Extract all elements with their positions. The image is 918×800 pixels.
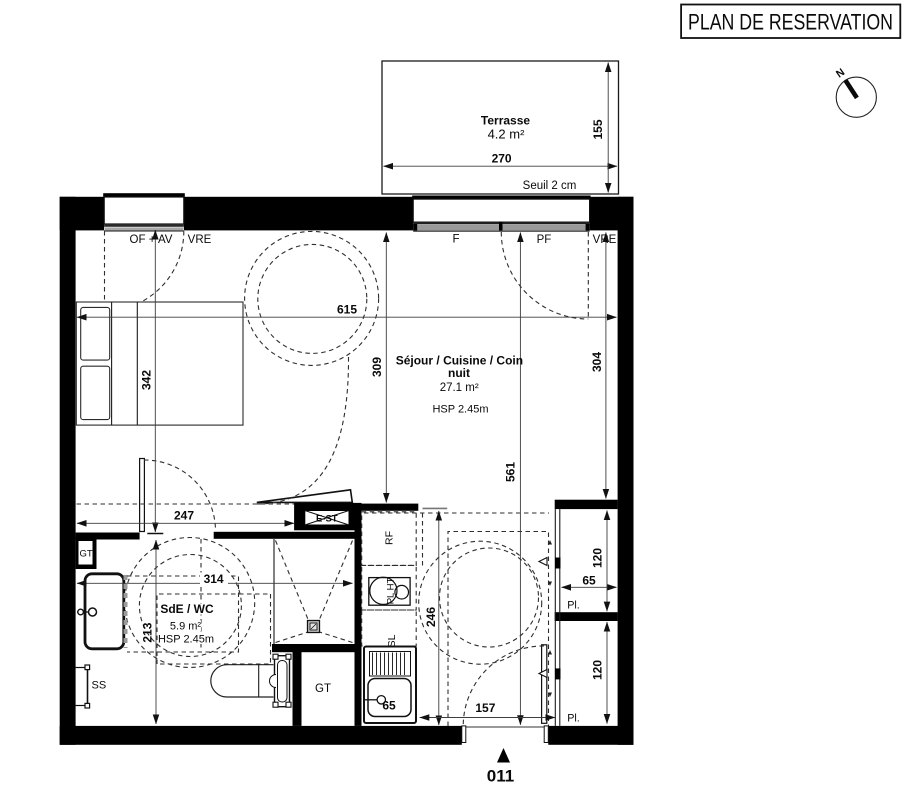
svg-text:4.2 m²: 4.2 m²	[488, 127, 526, 142]
svg-text:PF: PF	[537, 234, 552, 246]
svg-text:nuit: nuit	[448, 366, 470, 380]
svg-text:561: 561	[504, 462, 518, 482]
svg-text:OF + AV: OF + AV	[130, 234, 173, 246]
svg-text:155: 155	[591, 119, 605, 139]
svg-text:27.1 m²: 27.1 m²	[440, 382, 479, 394]
svg-text:GT: GT	[315, 683, 331, 695]
svg-text:314: 314	[204, 572, 224, 586]
svg-text:304: 304	[590, 352, 604, 372]
svg-text:247: 247	[174, 509, 194, 523]
svg-text:HSP 2.45m: HSP 2.45m	[158, 633, 214, 645]
svg-text:E-ST: E-ST	[316, 514, 338, 525]
svg-text:Terrasse: Terrasse	[481, 114, 530, 128]
svg-text:HSP 2.45m: HSP 2.45m	[432, 404, 488, 416]
svg-text:SL: SL	[386, 634, 398, 647]
svg-text:246: 246	[424, 607, 438, 627]
svg-text:F: F	[452, 234, 459, 246]
svg-text:Seuil 2 cm: Seuil 2 cm	[523, 180, 577, 192]
svg-text:SS: SS	[92, 680, 107, 692]
svg-text:65: 65	[582, 573, 596, 587]
svg-text:VRE: VRE	[593, 234, 617, 246]
svg-text:309: 309	[370, 357, 384, 377]
svg-text:615: 615	[337, 303, 357, 317]
svg-text:011: 011	[487, 767, 514, 786]
svg-text:213: 213	[141, 622, 155, 642]
svg-text:270: 270	[492, 152, 512, 166]
svg-text:PL HT: PL HT	[386, 578, 397, 605]
svg-text:342: 342	[140, 370, 154, 390]
svg-text:RF: RF	[384, 531, 396, 545]
svg-text:5.9 m²: 5.9 m²	[170, 621, 202, 633]
svg-text:120: 120	[591, 548, 605, 568]
svg-text:157: 157	[475, 701, 495, 715]
svg-text:PLAN DE RESERVATION: PLAN DE RESERVATION	[688, 9, 893, 34]
svg-text:Pl.: Pl.	[567, 600, 580, 612]
svg-text:SdE / WC: SdE / WC	[160, 602, 214, 616]
svg-text:GT: GT	[80, 549, 93, 560]
svg-text:VRE: VRE	[188, 234, 212, 246]
svg-text:Pl.: Pl.	[567, 713, 580, 725]
svg-text:120: 120	[591, 660, 605, 680]
svg-text:65: 65	[382, 699, 396, 713]
